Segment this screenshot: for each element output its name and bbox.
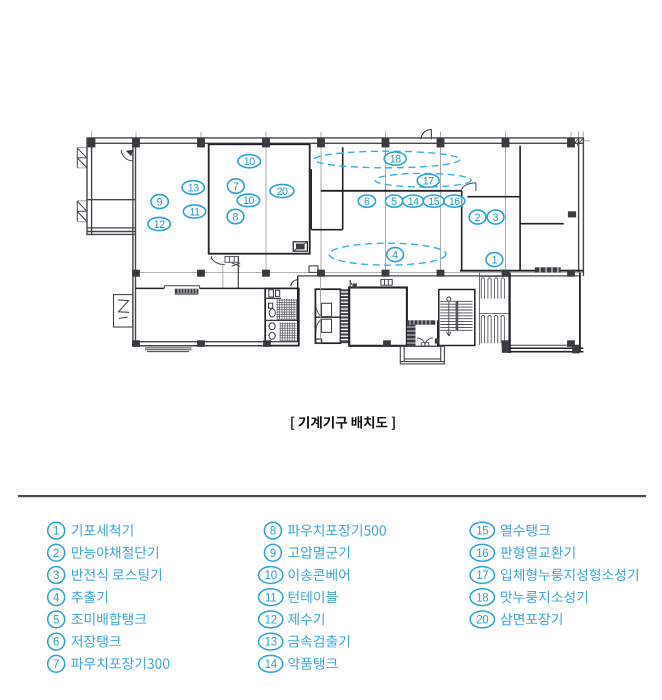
svg-text:9: 9 <box>157 196 163 208</box>
svg-text:4: 4 <box>392 249 398 261</box>
svg-text:17: 17 <box>423 175 434 187</box>
svg-text:5: 5 <box>391 196 397 208</box>
svg-text:2: 2 <box>53 548 59 560</box>
svg-text:9: 9 <box>270 548 276 560</box>
svg-text:10: 10 <box>265 570 277 582</box>
svg-text:8: 8 <box>270 526 276 538</box>
svg-text:13: 13 <box>188 182 199 194</box>
svg-text:1: 1 <box>53 526 59 538</box>
svg-text:12: 12 <box>154 219 165 231</box>
svg-text:17: 17 <box>476 570 488 582</box>
svg-text:20: 20 <box>476 615 488 627</box>
svg-text:13: 13 <box>265 637 277 649</box>
svg-text:3: 3 <box>53 570 59 582</box>
svg-text:15: 15 <box>476 526 488 538</box>
svg-text:10: 10 <box>243 195 254 207</box>
svg-text:12: 12 <box>265 615 277 627</box>
svg-text:7: 7 <box>53 659 59 671</box>
svg-text:14: 14 <box>408 196 419 208</box>
svg-text:20: 20 <box>277 186 288 198</box>
svg-text:8: 8 <box>233 211 239 223</box>
svg-text:11: 11 <box>265 592 276 604</box>
svg-text:6: 6 <box>53 637 59 649</box>
svg-text:10: 10 <box>244 156 255 168</box>
svg-text:18: 18 <box>476 592 488 604</box>
svg-text:7: 7 <box>233 181 239 193</box>
svg-text:15: 15 <box>428 196 439 208</box>
svg-text:16: 16 <box>476 548 488 560</box>
svg-text:14: 14 <box>265 659 278 671</box>
svg-text:2: 2 <box>475 212 481 224</box>
svg-text:6: 6 <box>364 196 370 208</box>
svg-text:5: 5 <box>53 615 59 627</box>
svg-text:4: 4 <box>53 592 60 604</box>
svg-text:18: 18 <box>390 153 401 165</box>
svg-text:16: 16 <box>449 196 460 208</box>
svg-text:11: 11 <box>190 206 201 218</box>
svg-text:3: 3 <box>493 212 499 224</box>
svg-text:1: 1 <box>491 254 497 266</box>
